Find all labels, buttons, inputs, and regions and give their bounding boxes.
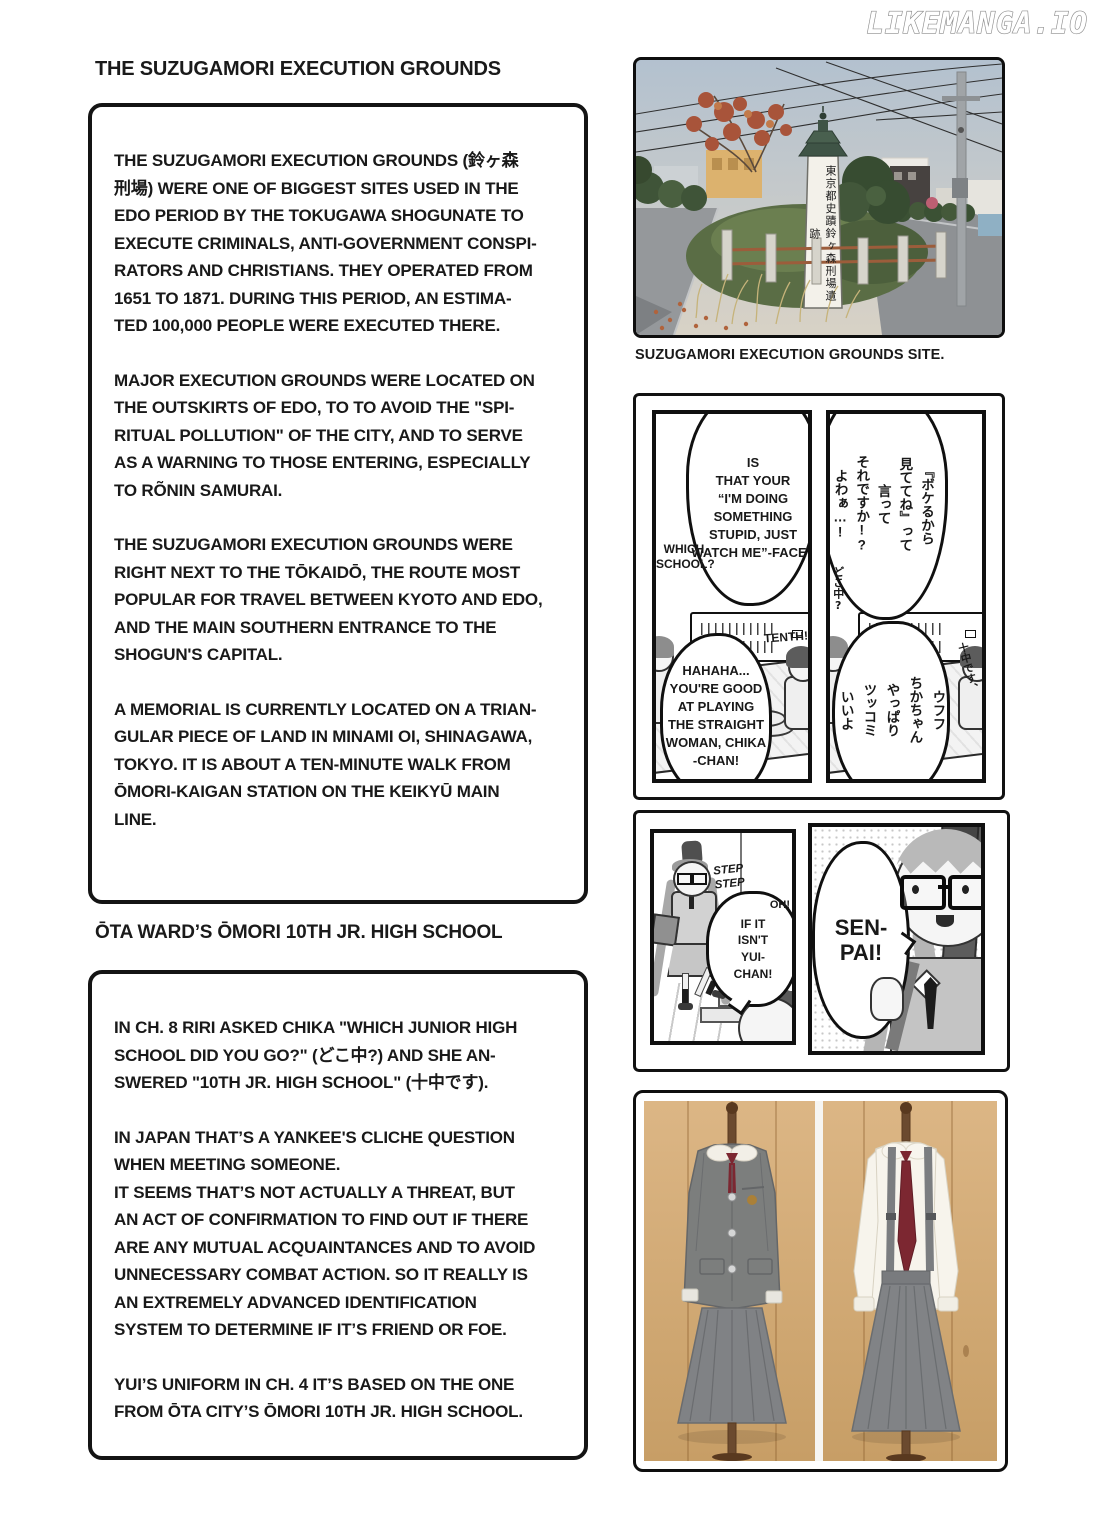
- strap-buckle: [926, 1213, 936, 1220]
- ac-button: [965, 630, 976, 638]
- cuff: [938, 1297, 958, 1311]
- pink-flower-bush: [926, 197, 938, 209]
- photo-omori-uniforms: [633, 1090, 1008, 1472]
- note-box-suzugamori: THE SUZUGAMORI EXECUTION GROUNDS (鈴ヶ森 刑場…: [88, 103, 588, 904]
- eye: [912, 885, 919, 894]
- glasses-icon: [692, 873, 707, 885]
- note-box-omori: IN CH. 8 RIRI ASKED CHIKA "WHICH JUNIOR …: [88, 970, 588, 1460]
- monument-inscription: 東京都史蹟鈴ヶ森刑場遺跡: [813, 161, 838, 307]
- manga-panel-jp: 『ボケるから 見ててね』って 言って それですか!? よわぁ…! どこ中? ウフ…: [826, 410, 986, 783]
- photo-caption: SUZUGAMORI EXECUTION GROUNDS SITE.: [635, 347, 945, 363]
- waistband: [882, 1271, 930, 1284]
- manga-panel-senpai: SEN- PAI!: [808, 823, 985, 1055]
- photo-divider: [815, 1101, 823, 1461]
- button: [728, 1265, 736, 1273]
- button: [728, 1193, 736, 1201]
- shirt-cuff: [766, 1291, 782, 1303]
- note-paragraph: IN JAPAN THAT’S A YANKEE'S CLICHE QUESTI…: [114, 1124, 568, 1344]
- glasses-bridge: [938, 885, 948, 889]
- watermark-text: LIKEMANGA.IO: [866, 6, 1088, 40]
- uniforms-photo-art: [644, 1101, 997, 1461]
- note-paragraph: MAJOR EXECUTION GROUNDS WERE LOCATED ON …: [114, 367, 568, 505]
- watermark-svg: LIKEMANGA.IO: [830, 4, 1092, 44]
- speech-bubble-yuichan: IF IT ISN'T YUI- CHAN! OH!: [706, 891, 796, 1007]
- photo-suzugamori-site: 東京都史蹟鈴ヶ森刑場遺跡: [633, 57, 1005, 338]
- note-paragraph: YUI’S UNIFORM IN CH. 4 IT’S BASED ON THE…: [114, 1371, 568, 1426]
- shoe: [678, 1003, 693, 1010]
- stand-pole: [902, 1431, 910, 1457]
- speech-text-jp: ウフフ ちかちゃん やっぱり ツッコミ いいよ: [834, 676, 949, 744]
- strap-buckle: [886, 1213, 896, 1220]
- school-emblem: [747, 1195, 757, 1205]
- speech-text: HAHAHA... YOU'RE GOOD AT PLAYING THE STR…: [666, 662, 766, 770]
- stand-pole: [728, 1423, 736, 1457]
- note-paragraph: A MEMORIAL IS CURRENTLY LOCATED ON A TRI…: [114, 696, 568, 834]
- manga-panel-walking: STEP STEP: [650, 829, 796, 1045]
- manga-extras-page: LIKEMANGA.IO THE SUZUGAMORI EXECUTION GR…: [0, 0, 1100, 1525]
- speech-text-jp: 『ボケるから 見ててね』って 言って それですか!? よわぁ…!: [829, 455, 937, 553]
- eye: [962, 885, 969, 894]
- waving-hand: [870, 977, 904, 1021]
- stand-base: [712, 1453, 752, 1461]
- glasses-icon: [900, 875, 946, 910]
- sfx-tenth: TENTH!: [764, 628, 809, 646]
- section-heading-suzugamori: THE SUZUGAMORI EXECUTION GROUNDS: [95, 58, 501, 81]
- school-bag: [650, 913, 680, 946]
- glasses-icon: [677, 873, 692, 885]
- note-paragraph: IN CH. 8 RIRI ASKED CHIKA "WHICH JUNIOR …: [114, 1014, 568, 1097]
- sfx-which-school: WHICH SCHOOL?: [656, 542, 712, 572]
- speech-bubble-top: IS THAT YOUR “I'M DOING SOMETHING STUPID…: [686, 410, 812, 606]
- button: [728, 1229, 736, 1237]
- speech-exclaim: OH!: [770, 899, 790, 911]
- manga-strip-2: STEP STEP: [633, 810, 1010, 1072]
- sfx-step-step: STEP STEP: [713, 862, 746, 894]
- shirt-cuff: [682, 1289, 698, 1301]
- speech-text: IF IT ISN'T YUI- CHAN!: [734, 916, 773, 982]
- section-heading-omori: ŌTA WARD’S ŌMORI 10TH JR. HIGH SCHOOL: [95, 922, 502, 944]
- speech-bubble-bottom-jp: ウフフ ちかちゃん やっぱり ツッコミ いいよ: [832, 621, 950, 783]
- character-body: [784, 676, 812, 730]
- speech-text: SEN- PAI!: [835, 915, 888, 966]
- site-watermark: LIKEMANGA.IO: [830, 4, 1092, 49]
- character-hair: [652, 636, 674, 658]
- manga-panel-en: IS THAT YOUR “I'M DOING SOMETHING STUPID…: [652, 410, 812, 783]
- speech-bubble-bottom: HAHAHA... YOU'RE GOOD AT PLAYING THE STR…: [660, 633, 772, 783]
- note-paragraph: THE SUZUGAMORI EXECUTION GROUNDS (鈴ヶ森 刑場…: [114, 147, 568, 340]
- blue-wall: [978, 214, 1002, 236]
- mouth: [936, 915, 954, 927]
- note-paragraph: THE SUZUGAMORI EXECUTION GROUNDS WERE RI…: [114, 531, 568, 669]
- cuff: [854, 1297, 874, 1311]
- sfx-doko-chu: どこ中?: [831, 560, 845, 618]
- manga-strip-1: IS THAT YOUR “I'M DOING SOMETHING STUPID…: [633, 393, 1005, 800]
- character-hair: [786, 646, 812, 668]
